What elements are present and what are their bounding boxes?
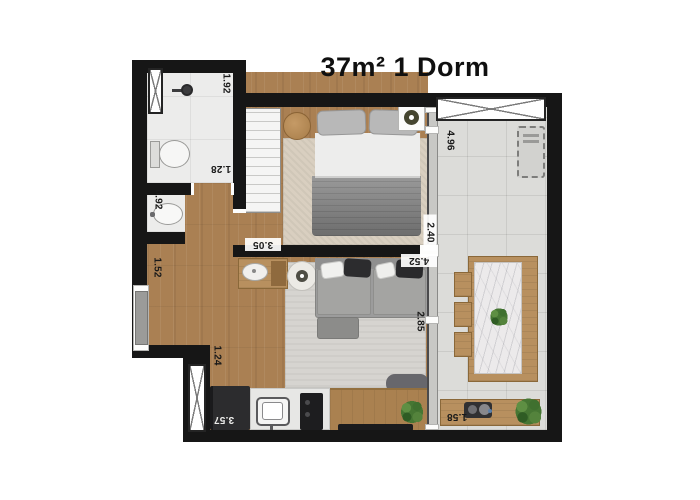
wardrobe <box>245 108 281 213</box>
glass-wall <box>427 107 438 430</box>
door-jamb <box>191 183 194 195</box>
sofa-pillow-white <box>320 260 345 279</box>
dim-glass-span: 4.52 <box>401 254 437 267</box>
entry-door <box>135 291 148 345</box>
sofa-pillow-black <box>343 258 371 278</box>
dim-kitchen: 3.57 <box>206 413 242 426</box>
ac-slat <box>523 134 539 137</box>
cooktop-icon <box>300 393 323 430</box>
burner-icon <box>305 400 310 405</box>
decor-bowl-dot-icon <box>252 269 256 273</box>
shower-head-icon <box>181 84 193 96</box>
floor-lamp-center-icon <box>300 274 304 278</box>
ottoman <box>317 317 359 339</box>
chair <box>454 302 472 327</box>
ac-slat <box>523 140 539 143</box>
table-plant-icon <box>488 306 510 328</box>
dim-balcony-width: 1.58 <box>439 410 475 423</box>
bathroom-window <box>148 68 163 114</box>
wall <box>183 430 562 442</box>
kitchen-window <box>188 364 206 432</box>
floor-plan: 1.92 1.28 0.92 1.52 1.24 3.05 2.40 4.52 … <box>0 0 700 500</box>
mullion <box>425 126 439 134</box>
bed-sheet <box>315 133 420 178</box>
grill-knob-icon <box>488 409 492 413</box>
toilet-bowl-icon <box>159 140 190 168</box>
balcony-plant-icon <box>512 395 545 428</box>
dim-shower: 1.92 <box>220 66 233 102</box>
dim-balcony-length: 4.96 <box>444 123 457 159</box>
dim-bedroom-depth: 2.40 <box>424 215 437 251</box>
sink-basin-icon <box>262 402 283 420</box>
burner-icon <box>305 412 310 417</box>
table-lamp-center-icon <box>409 115 414 120</box>
dim-living-depth: 2.85 <box>414 304 427 340</box>
wall <box>234 183 246 195</box>
bedside-round-table <box>283 112 311 140</box>
wall <box>547 93 562 442</box>
bed-pillow <box>317 109 367 136</box>
plant-icon <box>398 398 426 426</box>
wall <box>132 232 185 244</box>
chair <box>454 272 472 297</box>
bed-blanket <box>312 176 421 236</box>
dim-bathroom: 1.28 <box>203 162 239 175</box>
exterior-gap <box>130 358 183 442</box>
dim-entry: 1.24 <box>211 338 224 374</box>
chair <box>454 332 472 357</box>
door-jamb <box>231 183 234 195</box>
dim-bedroom-width: 3.05 <box>245 238 281 251</box>
balcony-window <box>436 97 546 121</box>
plan-title: 37m² 1 Dorm <box>250 52 560 83</box>
door-jamb <box>233 209 246 213</box>
dim-basin: 0.92 <box>152 182 165 218</box>
dim-hall: 1.52 <box>151 250 164 286</box>
console-inset <box>271 261 286 286</box>
mullion <box>425 316 439 324</box>
